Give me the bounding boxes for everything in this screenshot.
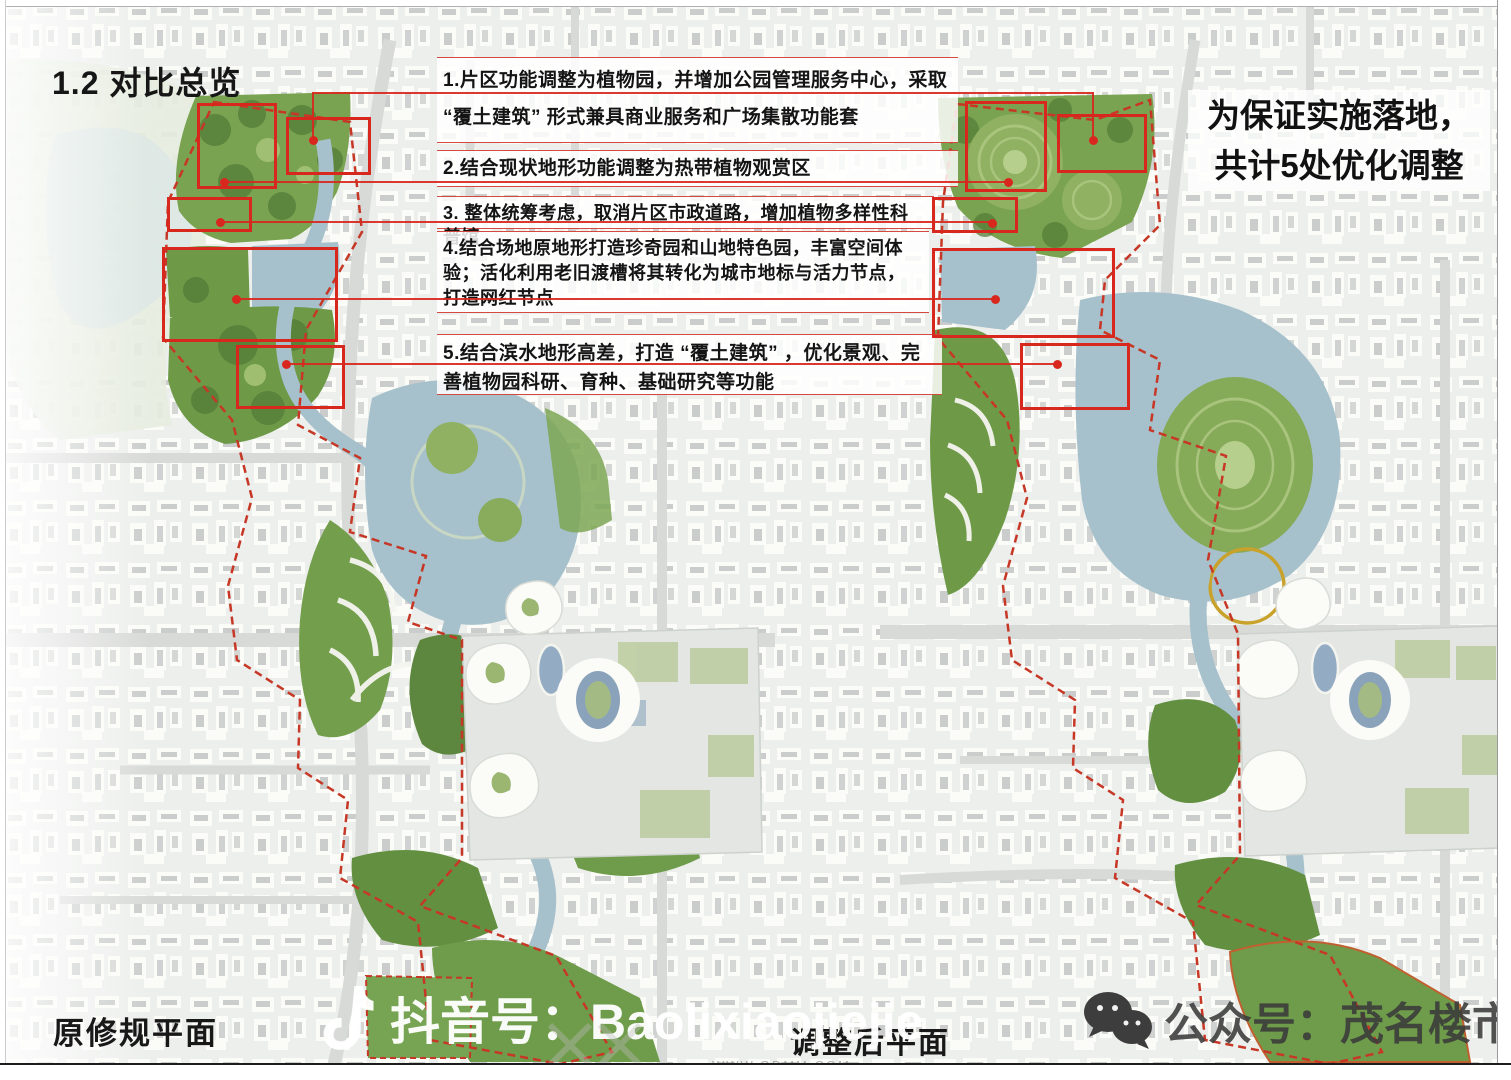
callout-line-2: 共计5处优化调整 <box>1188 141 1490 191</box>
frame-right <box>1497 0 1511 1080</box>
frame-top <box>0 0 1511 7</box>
highlight-box-right-5 <box>1020 343 1130 410</box>
highlight-box-left-3 <box>167 197 252 232</box>
wechat-watermark-text: 公众号：茂名楼市 <box>1164 988 1511 1052</box>
page-title: 1.2 对比总览 <box>52 58 241 104</box>
leader-line-5 <box>286 363 1057 365</box>
leader-line-3 <box>220 221 992 223</box>
bottom-caption-strip: 调整前后对比总平面图 <box>0 1063 1511 1080</box>
highlight-box-right-1 <box>965 101 1047 192</box>
highlight-box-right-2 <box>1057 114 1147 173</box>
annotation-text-1: 1.片区功能调整为植物园，并增加公园管理服务中心，采取 “覆土建筑” 形式兼具商… <box>443 70 947 128</box>
bottom-caption-text: 调整前后对比总平面图 <box>505 1066 1035 1080</box>
annotation-band-4: 4.结合场地原地形打造珍奇园和山地特色园，丰富空间体验；活化利用老旧渡槽将其转化… <box>437 231 929 313</box>
highlight-box-right-4 <box>932 248 1115 338</box>
annotation-band-3: 3. 整体统筹考虑，取消片区市政道路，增加植物多样性科普馆 <box>437 196 934 229</box>
highlight-box-right-3 <box>932 197 1018 233</box>
slide-comparison-overview: 1.片区功能调整为植物园，并增加公园管理服务中心，采取 “覆土建筑” 形式兼具商… <box>0 0 1511 1080</box>
leader-line-2 <box>224 181 1008 183</box>
callout-line-1: 为保证实施落地， <box>1188 91 1490 141</box>
annotation-text-2: 2.结合现状地形功能调整为热带植物观赏区 <box>443 158 811 179</box>
highlight-box-left-2 <box>286 117 371 175</box>
left-plan-label: 原修规平面 <box>53 1008 218 1053</box>
leader-line-4 <box>236 298 995 300</box>
wechat-watermark: 公众号：茂名楼市 <box>1082 988 1511 1052</box>
highlight-box-left-4 <box>162 247 338 342</box>
optimization-callout: 为保证实施落地， 共计5处优化调整 <box>1188 90 1490 191</box>
highlight-box-left-1 <box>197 103 277 189</box>
wechat-icon <box>1082 988 1154 1052</box>
leader-line-1 <box>313 92 1093 94</box>
douyin-note-icon <box>322 984 374 1052</box>
frame-left <box>0 0 6 1080</box>
highlight-box-left-5 <box>236 345 345 409</box>
annotation-text-5: 5.结合滨水地形高差，打造 “覆土建筑” ，优化景观、完善植物园科研、育种、基础… <box>443 343 920 393</box>
annotation-band-1: 1.片区功能调整为植物园，并增加公园管理服务中心，采取 “覆土建筑” 形式兼具商… <box>437 57 958 143</box>
